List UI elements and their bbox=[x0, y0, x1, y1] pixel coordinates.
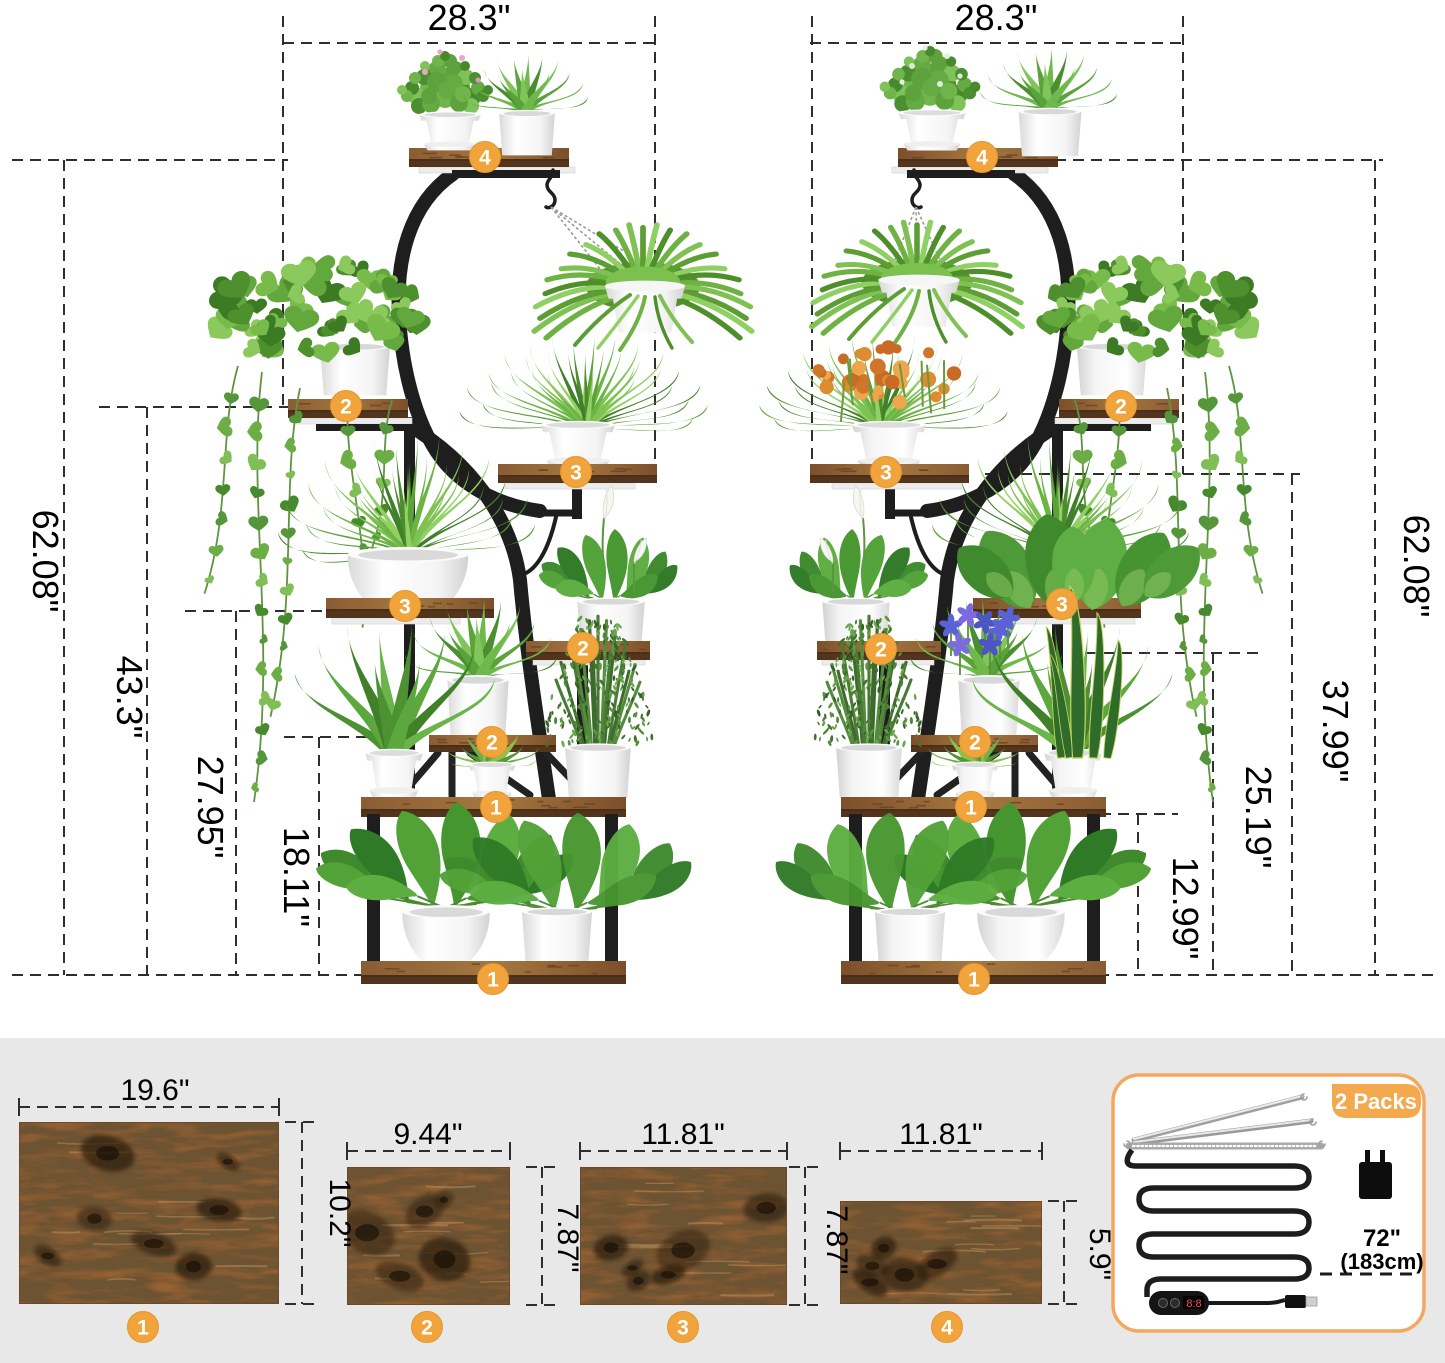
svg-text:18.11": 18.11" bbox=[276, 827, 317, 927]
svg-text:3: 3 bbox=[399, 596, 411, 619]
svg-text:1: 1 bbox=[965, 797, 977, 820]
svg-text:12.99": 12.99" bbox=[1165, 857, 1206, 960]
svg-text:4: 4 bbox=[976, 147, 988, 170]
svg-text:2: 2 bbox=[577, 638, 589, 661]
svg-text:1: 1 bbox=[968, 969, 980, 992]
svg-text:37.99": 37.99" bbox=[1315, 680, 1356, 783]
svg-text:27.95": 27.95" bbox=[190, 756, 231, 859]
svg-text:2: 2 bbox=[486, 732, 498, 755]
svg-text:11.81": 11.81" bbox=[899, 1118, 983, 1151]
svg-text:7.87": 7.87" bbox=[820, 1205, 853, 1274]
svg-text:3: 3 bbox=[1056, 594, 1068, 617]
svg-text:2: 2 bbox=[875, 639, 887, 662]
svg-text:1: 1 bbox=[487, 969, 499, 992]
svg-text:2: 2 bbox=[421, 1317, 433, 1340]
svg-text:2 Packs: 2 Packs bbox=[1335, 1089, 1417, 1114]
svg-text:5.9": 5.9" bbox=[1083, 1228, 1116, 1280]
svg-text:1: 1 bbox=[137, 1317, 149, 1340]
svg-text:2: 2 bbox=[1115, 396, 1127, 419]
svg-text:3: 3 bbox=[570, 462, 582, 485]
svg-text:62.08": 62.08" bbox=[1396, 515, 1437, 618]
svg-text:3: 3 bbox=[880, 462, 892, 485]
svg-text:9.44": 9.44" bbox=[393, 1118, 462, 1151]
svg-text:8:8: 8:8 bbox=[1186, 1298, 1201, 1310]
svg-text:3: 3 bbox=[677, 1317, 689, 1340]
svg-text:19.6": 19.6" bbox=[120, 1074, 189, 1107]
svg-text:43.3": 43.3" bbox=[109, 656, 150, 739]
svg-text:(183cm): (183cm) bbox=[1340, 1249, 1423, 1274]
svg-text:4: 4 bbox=[479, 147, 491, 170]
svg-text:1: 1 bbox=[490, 797, 502, 820]
svg-text:2: 2 bbox=[969, 732, 981, 755]
svg-text:10.2": 10.2" bbox=[323, 1178, 356, 1247]
svg-text:72": 72" bbox=[1363, 1225, 1401, 1252]
svg-text:7.87": 7.87" bbox=[551, 1203, 584, 1272]
svg-text:28.3": 28.3" bbox=[955, 0, 1038, 38]
svg-text:25.19": 25.19" bbox=[1238, 766, 1279, 869]
svg-text:62.08": 62.08" bbox=[25, 510, 66, 613]
svg-text:11.81": 11.81" bbox=[641, 1118, 725, 1151]
svg-text:4: 4 bbox=[941, 1317, 953, 1340]
svg-text:28.3": 28.3" bbox=[428, 0, 511, 38]
svg-text:2: 2 bbox=[340, 396, 352, 419]
